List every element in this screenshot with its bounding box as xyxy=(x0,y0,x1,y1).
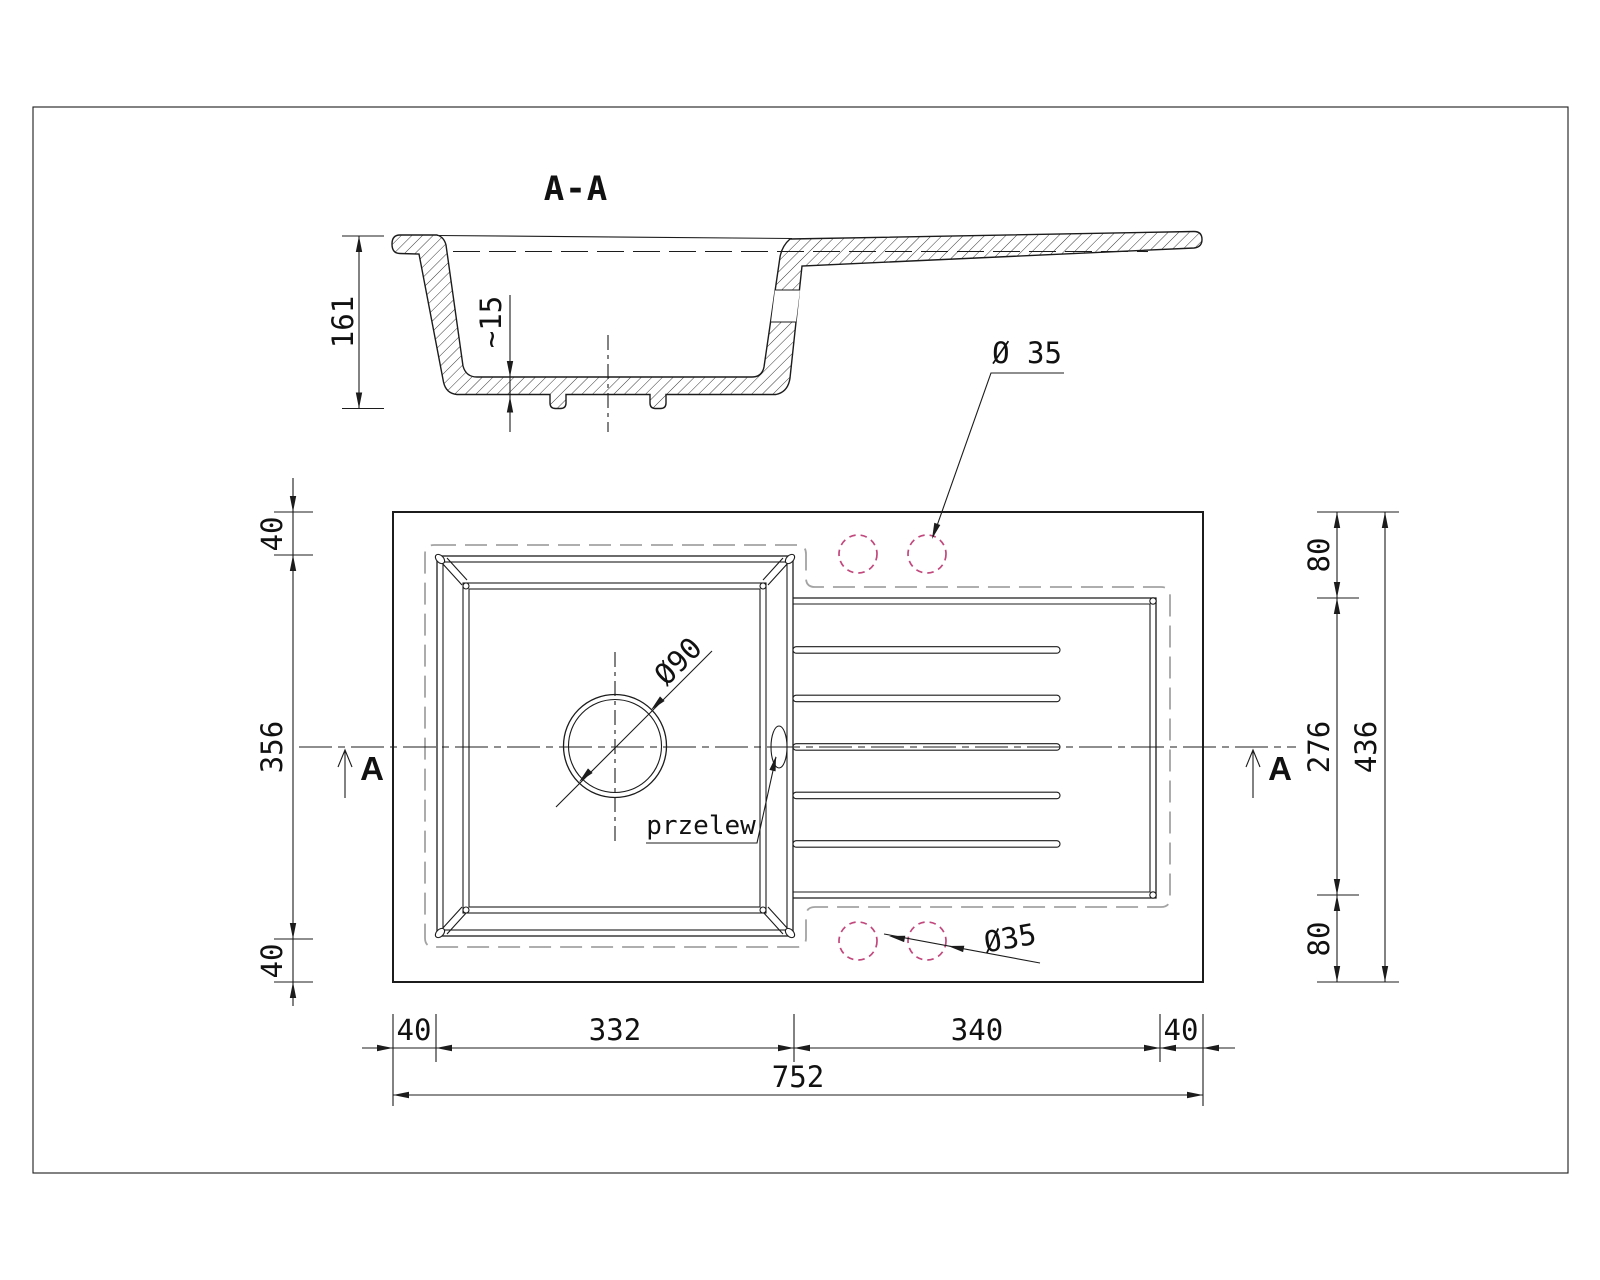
tap-hole xyxy=(908,535,946,573)
section-marker-left: A xyxy=(338,750,384,798)
dim-bottom-4: 40 xyxy=(1164,1013,1199,1047)
tap-hole xyxy=(908,922,946,960)
section-view: A-A 161 ~15 xyxy=(326,169,1202,432)
dim-right-total: 436 xyxy=(1349,721,1383,773)
dim-right-top: 80 xyxy=(1302,538,1336,573)
drainer-rib xyxy=(793,647,1060,654)
drain-callout: Ø90 xyxy=(556,631,712,807)
dims-left: 40 356 40 xyxy=(255,478,313,1006)
dims-bottom: 40 332 340 40 752 xyxy=(362,1013,1235,1106)
tap-label-bottom: Ø35 xyxy=(981,917,1038,960)
dim-right-bottom: 80 xyxy=(1302,922,1336,957)
top-view: Ø90 przelew Ø 35 Ø35 xyxy=(299,336,1296,982)
drainer-rib xyxy=(793,841,1060,848)
rim-projection-line xyxy=(437,236,792,239)
overflow-label: przelew xyxy=(646,811,756,841)
dim-left-top: 40 xyxy=(255,517,289,552)
drain-dim-label: Ø90 xyxy=(648,631,709,692)
dim-bottom-thickness: ~15 xyxy=(474,295,513,432)
dim-bottom-2: 332 xyxy=(589,1013,641,1047)
dim-bottom-1: 40 xyxy=(397,1013,432,1047)
dim-left-mid: 356 xyxy=(255,721,289,773)
section-marker-label: A xyxy=(1268,750,1292,787)
tap-label-top: Ø 35 xyxy=(992,336,1062,370)
section-marker-right: A xyxy=(1246,750,1292,798)
drawing-page: A-A 161 ~15 xyxy=(0,0,1600,1280)
tap-hole xyxy=(839,535,877,573)
technical-drawing: A-A 161 ~15 xyxy=(0,0,1600,1280)
dim-depth: 161 xyxy=(326,236,384,409)
drainer-rib xyxy=(793,695,1060,702)
dim-depth-label: 161 xyxy=(326,296,360,348)
section-title: A-A xyxy=(544,169,608,209)
drainer-corner-dot xyxy=(1150,598,1156,604)
tap-hole xyxy=(839,922,877,960)
tap-callout-top: Ø 35 xyxy=(932,336,1064,539)
drainer-rib xyxy=(793,792,1060,799)
dim-bottom-total: 752 xyxy=(772,1060,824,1094)
overflow-channel-gap xyxy=(771,290,800,322)
overflow-callout: przelew xyxy=(646,756,776,843)
dim-right-mid: 276 xyxy=(1302,721,1336,773)
dim-bottom-3: 340 xyxy=(951,1013,1003,1047)
dim-left-bottom: 40 xyxy=(255,944,289,979)
dim-bottom-thickness-label: ~15 xyxy=(474,296,508,348)
sink-cross-section xyxy=(392,232,1202,409)
section-marker-label: A xyxy=(360,750,384,787)
dims-right: 80 276 80 436 xyxy=(1302,512,1399,982)
drainer xyxy=(793,598,1156,898)
drainer-corner-dot xyxy=(1150,892,1156,898)
